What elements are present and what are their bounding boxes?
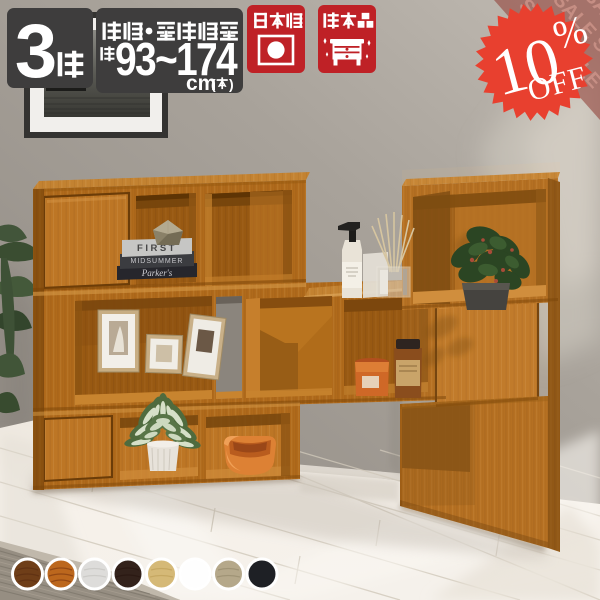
svg-text:93~174: 93~174 [115,33,238,85]
svg-text:(: ( [211,76,216,92]
svg-text:3: 3 [15,9,57,94]
svg-text:Parker's: Parker's [141,268,173,278]
svg-text:MIDSUMMER: MIDSUMMER [131,258,184,265]
svg-text:): ) [229,76,234,92]
